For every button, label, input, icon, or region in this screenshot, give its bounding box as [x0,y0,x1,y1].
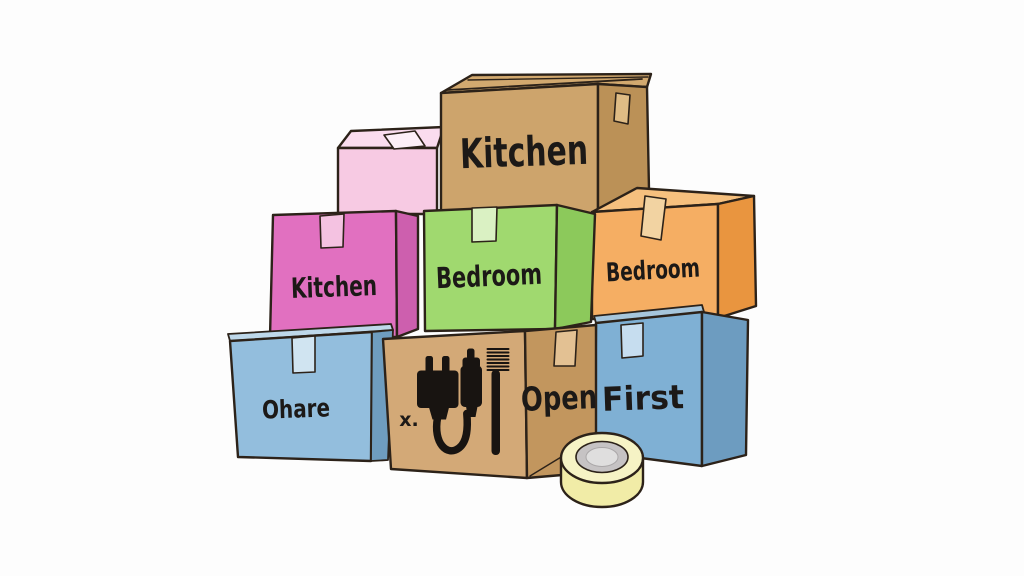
scene-canvas: Kitchen Bedroom Kitchen Bedroom Ohare Fi [0,0,1024,576]
essentials-box-tape-tab [554,330,577,366]
charger-icon [461,349,483,418]
box-green-bedroom: Bedroom [424,205,595,331]
ohare-box-label: Ohare [262,393,331,424]
magenta-box-tape-tab [320,214,344,248]
orange-box-tape-tab [641,196,666,240]
box-brown-kitchen: Kitchen [441,74,651,216]
tape-roll [561,433,643,507]
magenta-box-label: Kitchen [290,269,377,305]
box-orange-bedroom: Bedroom [592,188,756,319]
green-box-label: Bedroom [435,257,542,296]
plug-prong [426,356,434,373]
plug-prong [442,356,450,373]
green-box-tape-tab [472,207,497,242]
green-box-side-face [555,205,595,329]
box-blue-ohare: Ohare [228,324,393,461]
charger-body [461,366,483,408]
x-mark-label: x. [399,409,418,431]
orange-box-label: Bedroom [605,254,700,289]
brown-kitchen-tape-tab [614,93,630,124]
tape-roll-hole [586,448,618,467]
charger-neck [466,407,478,418]
plug-body [417,371,459,409]
first-box-tape-tab [621,323,643,358]
pink-box-front-face [338,148,437,214]
magenta-box-side-face [396,211,418,337]
box-pink-small [338,127,444,214]
moving-boxes-illustration: Kitchen Bedroom Kitchen Bedroom Ohare Fi [0,0,1024,576]
toothbrush-handle [492,370,501,455]
orange-box-side-face [718,196,756,318]
essentials-side-label: Open [520,377,597,419]
brown-kitchen-label: Kitchen [459,126,589,178]
ohare-box-tape-tab [292,336,315,373]
first-box-side-face [702,312,748,466]
box-magenta-kitchen: Kitchen [270,211,418,337]
first-box-label: First [601,377,685,419]
